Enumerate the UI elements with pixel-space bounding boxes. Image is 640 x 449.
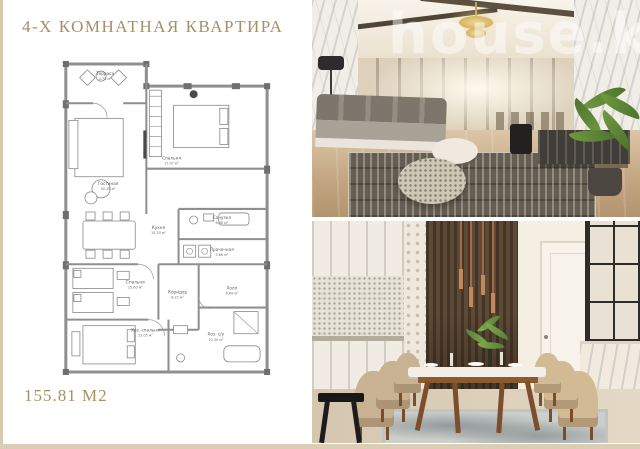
page-title: 4-Х КОМНАТНАЯ КВАРТИРА	[22, 17, 283, 37]
master-bedroom-furniture	[72, 326, 135, 364]
sofa	[315, 94, 447, 155]
table-dish	[424, 363, 438, 367]
table-lamp-stem	[330, 70, 332, 96]
pendant-rod	[470, 221, 472, 287]
room-area: 10.30 м²	[208, 338, 223, 342]
room-label: Спальня	[126, 279, 145, 284]
room-area: 15.20 м²	[151, 231, 166, 235]
room-area: 23.05 м²	[138, 334, 153, 338]
door-handle	[544, 335, 548, 339]
wine-glass	[500, 352, 503, 365]
pendant-rod	[482, 221, 484, 275]
kitchen-backsplash	[312, 276, 404, 336]
living-room-photo: house.kg	[312, 0, 640, 217]
dining-table-apron	[418, 377, 538, 383]
total-area: 155.81 М2	[24, 386, 108, 406]
room-area: 6.84 м²	[226, 291, 239, 295]
room-area: 8.22 м²	[171, 296, 184, 300]
side-table	[510, 124, 532, 154]
room-label: Холл	[226, 285, 237, 290]
pendant-rod	[460, 221, 462, 269]
bedroom-3-furniture	[73, 268, 129, 312]
room-label: Прачечная	[210, 247, 234, 252]
pendant-rod	[492, 221, 494, 293]
room-label: Санузел	[213, 215, 232, 220]
glass-partition	[585, 221, 640, 341]
floor-plan-drawing: Терраса 4.79 м² Гостиная 30.28 м² Спальн…	[52, 60, 290, 378]
room-area: 5.66 м²	[216, 253, 229, 257]
room-area: 17.07 м²	[164, 162, 179, 166]
wine-glass	[450, 353, 453, 366]
page-frame-left	[0, 0, 3, 449]
pendant-lights	[458, 221, 498, 317]
table-lamp	[318, 56, 344, 70]
kitchen-furniture	[83, 212, 135, 258]
room-area: 30.28 м²	[101, 187, 116, 191]
living-room-furniture	[69, 118, 146, 204]
bedroom-2-furniture	[149, 90, 229, 156]
watermark: house.kg	[388, 2, 640, 67]
ottoman-pouf	[398, 158, 466, 204]
room-area: 6.68 м²	[216, 221, 229, 225]
room-area: 15.60 м²	[128, 285, 143, 289]
dining-room-photo	[312, 221, 640, 443]
potted-plant	[554, 84, 640, 196]
room-label: Хоз. с/у	[207, 332, 224, 337]
room-label: Терраса	[95, 71, 114, 76]
table-dish	[468, 362, 484, 366]
room-label: Спальня	[162, 156, 181, 161]
room-label: Хоз. спальня	[131, 328, 160, 333]
room-label: Кухня	[152, 225, 166, 230]
table-dish	[508, 363, 522, 367]
bottle	[488, 349, 492, 367]
room-area: 4.79 м²	[99, 77, 112, 81]
page-frame-bottom	[0, 444, 640, 449]
laundry-fixtures	[184, 245, 211, 257]
kitchen-counter	[312, 336, 404, 341]
floor-plan: Терраса 4.79 м² Гостиная 30.28 м² Спальн…	[52, 60, 290, 378]
room-label: Гостиная	[98, 181, 119, 186]
dining-table-top	[408, 367, 546, 377]
listing-card: 4-Х КОМНАТНАЯ КВАРТИРА	[0, 0, 640, 449]
room-label: Коридор	[168, 289, 187, 294]
plant-pot	[588, 168, 622, 196]
